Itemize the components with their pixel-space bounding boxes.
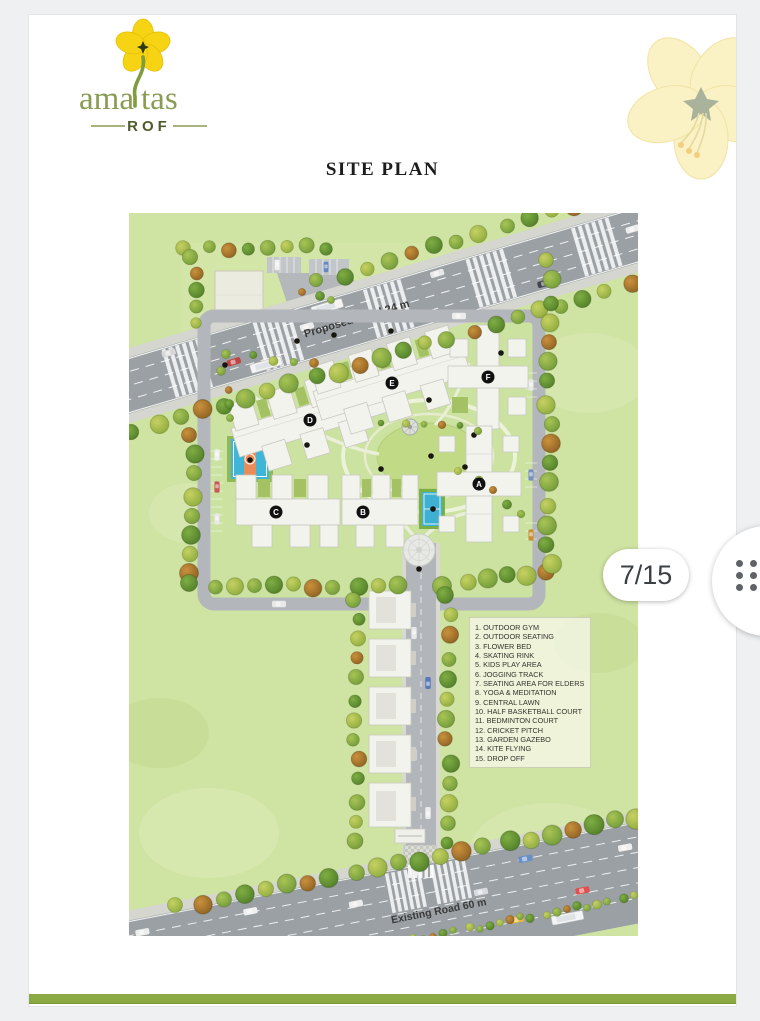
lowrise-building-strip: [369, 591, 416, 827]
legend-item: 14. KITE FLYING: [475, 744, 586, 753]
brand-name-right: tas: [141, 81, 178, 117]
site-plan-image: Existing Road 60 m: [129, 213, 638, 936]
document-page: ama tas ROF SITE PLAN: [28, 14, 737, 1007]
tower-label-e: E: [389, 379, 395, 388]
legend-item: 1. OUTDOOR GYM: [475, 623, 586, 632]
legend-item: 6. JOGGING TRACK: [475, 670, 586, 679]
viewer-background: { "viewer": { "page_indicator": "7/15", …: [0, 0, 760, 1021]
tower-label-d: D: [307, 416, 313, 425]
legend-item: 10. HALF BASKETBALL COURT: [475, 707, 586, 716]
legend-item: 12. CRICKET PITCH: [475, 726, 586, 735]
site-plan-legend: 1. OUTDOOR GYM 2. OUTDOOR SEATING 3. FLO…: [469, 617, 591, 768]
footer-accent-bar: [29, 994, 736, 1004]
legend-item: 3. FLOWER BED: [475, 642, 586, 651]
tower-label-a: A: [476, 480, 482, 489]
page-title: SITE PLAN: [29, 159, 736, 181]
brand-logo: ama tas ROF: [65, 17, 235, 149]
legend-item: 2. OUTDOOR SEATING: [475, 632, 586, 641]
legend-item: 13. GARDEN GAZEBO: [475, 735, 586, 744]
brand-name-left: ama: [79, 81, 134, 117]
legend-item: 15. DROP OFF: [475, 754, 586, 763]
tower-label-c: C: [273, 508, 279, 517]
legend-item: 9. CENTRAL LAWN: [475, 698, 586, 707]
legend-item: 5. KIDS PLAY AREA: [475, 660, 586, 669]
tower-label-f: F: [486, 373, 491, 382]
legend-item: 7. SEATING AREA FOR ELDERS: [475, 679, 586, 688]
entry-plaza: [403, 534, 435, 566]
page-indicator: 7/15: [603, 549, 689, 601]
tower-label-b: B: [360, 508, 366, 517]
site-plan-drawing: Existing Road 60 m: [129, 213, 638, 936]
legend-item: 8. YOGA & MEDITATION: [475, 688, 586, 697]
brand-tagline: ROF: [127, 118, 171, 135]
legend-item: 11. BEDMINTON COURT: [475, 716, 586, 725]
legend-item: 4. SKATING RINK: [475, 651, 586, 660]
